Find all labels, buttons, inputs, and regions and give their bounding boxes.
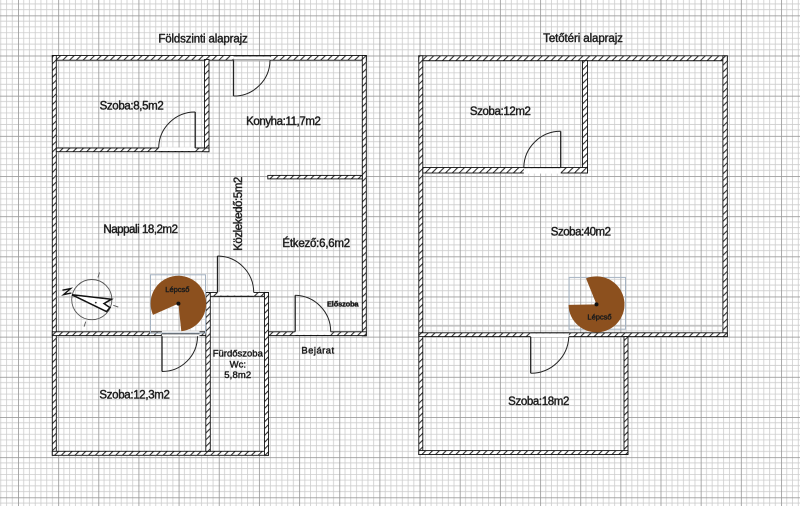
svg-text:Szoba:8,5m2: Szoba:8,5m2 xyxy=(100,100,164,112)
svg-text:Fürdőszoba: Fürdőszoba xyxy=(213,348,264,359)
svg-text:Szoba:40m2: Szoba:40m2 xyxy=(551,227,611,239)
svg-text:Szoba:12m2: Szoba:12m2 xyxy=(470,106,531,118)
svg-text:Szoba:12,3m2: Szoba:12,3m2 xyxy=(99,390,169,402)
svg-text:Szoba:18m2: Szoba:18m2 xyxy=(508,396,569,408)
svg-text:Lépcső: Lépcső xyxy=(165,285,189,294)
svg-text:Wc:: Wc: xyxy=(230,360,246,371)
svg-text:Étkező:6,6m2: Étkező:6,6m2 xyxy=(282,237,350,250)
svg-text:Nappali 18,2m2: Nappali 18,2m2 xyxy=(103,224,177,236)
svg-text:Előszoba: Előszoba xyxy=(327,300,359,309)
svg-text:Földszinti alaprajz: Földszinti alaprajz xyxy=(158,33,248,45)
svg-text:Bejárat: Bejárat xyxy=(301,345,334,356)
svg-text:Tetőtéri alaprajz: Tetőtéri alaprajz xyxy=(543,33,623,45)
svg-text:5,8m2: 5,8m2 xyxy=(224,370,251,381)
svg-text:Lépcső: Lépcső xyxy=(587,312,611,321)
svg-text:Konyha:11,7m2: Konyha:11,7m2 xyxy=(246,116,320,128)
svg-text:Közlekedő:5m2: Közlekedő:5m2 xyxy=(233,177,245,251)
